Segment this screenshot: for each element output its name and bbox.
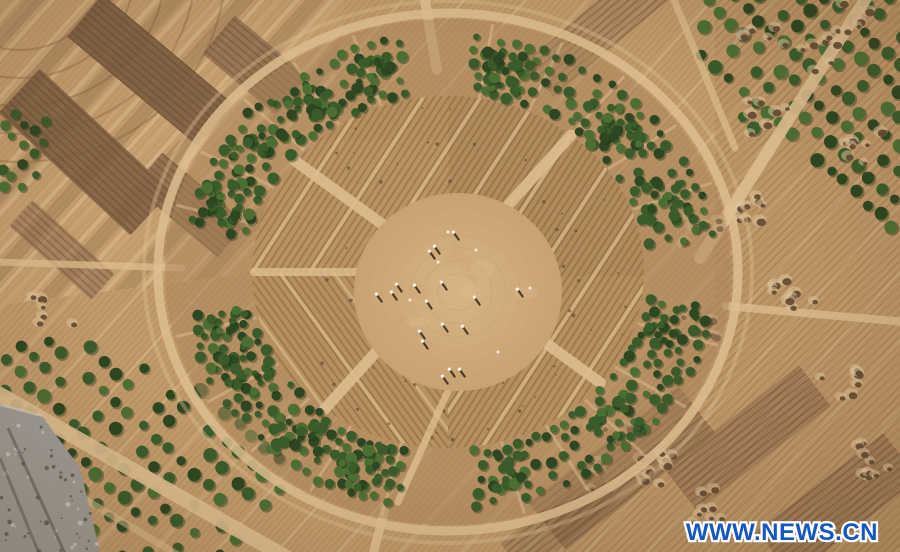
aerial-photograph: WWW.NEWS.CN (0, 0, 900, 552)
watermark-text: WWW.NEWS.CN (686, 519, 878, 546)
aerial-photo-canvas: WWW.NEWS.CN (0, 0, 900, 552)
photo-vignette (0, 0, 900, 552)
